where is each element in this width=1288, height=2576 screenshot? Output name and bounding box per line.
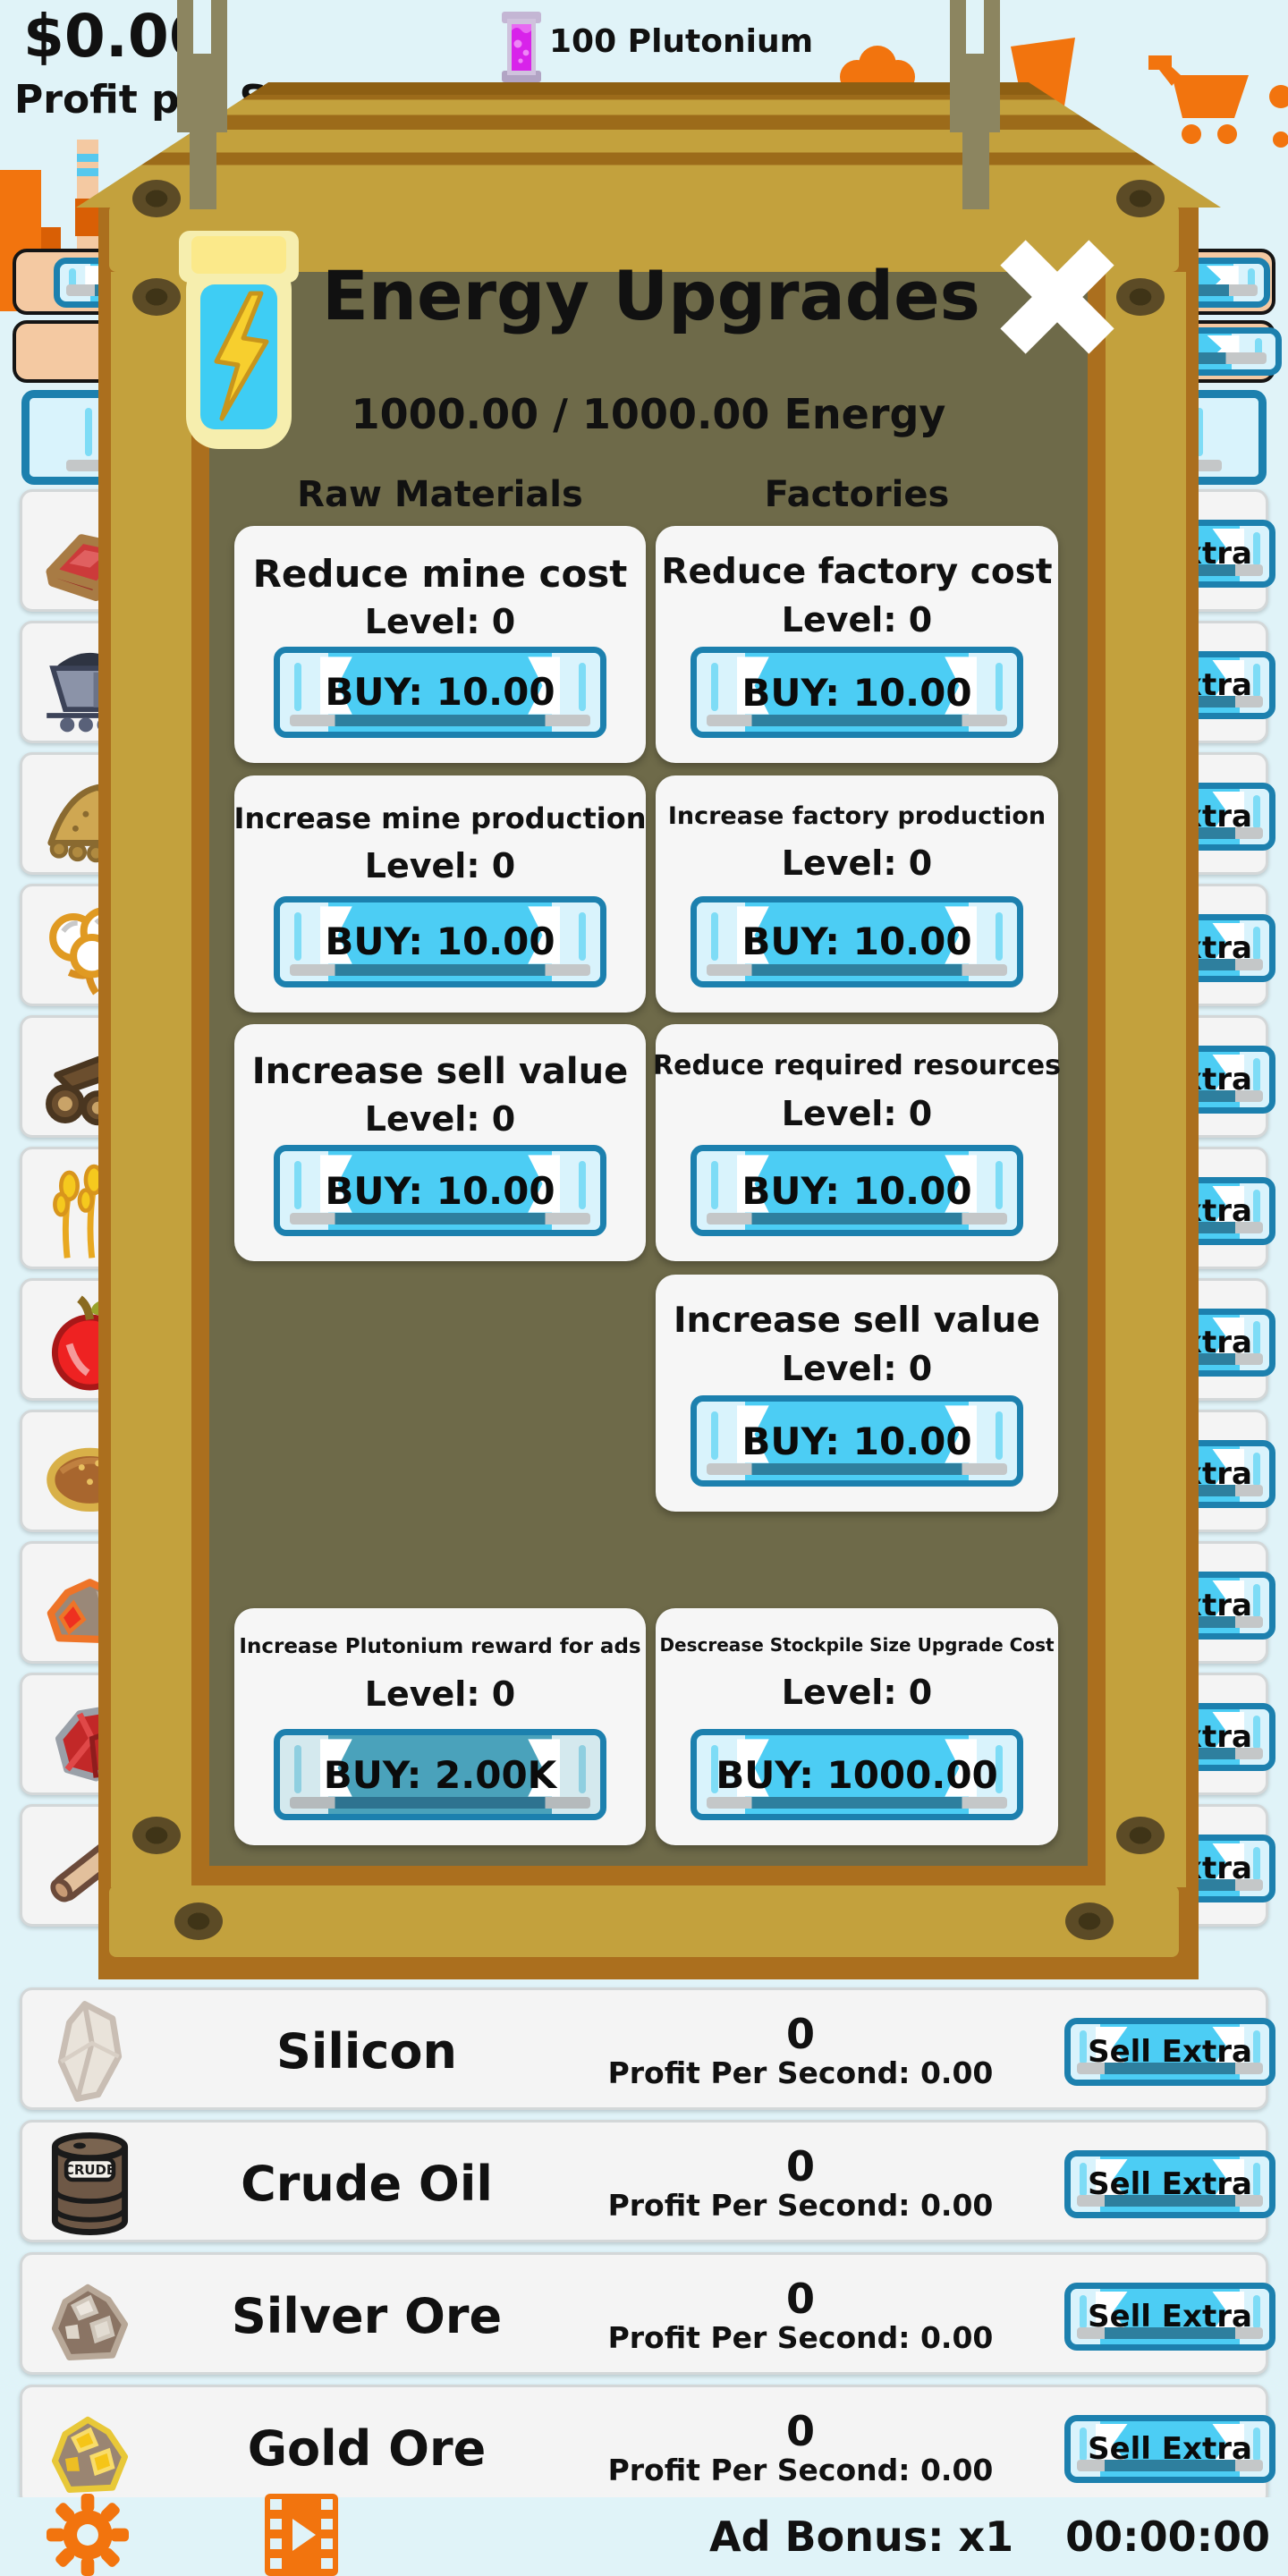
resource-stats: 0Profit Per Second: 0.00 [595, 2123, 1006, 2245]
upgrade-level: Level: 0 [365, 602, 515, 641]
banner-label: BUY: 10.00 [325, 670, 555, 714]
banner-bar [1253, 927, 1260, 961]
banner-bar [1253, 1321, 1260, 1355]
upgrade-level: Level: 0 [782, 1673, 932, 1712]
silver-ore-icon [38, 2265, 141, 2368]
banner-bar [85, 408, 92, 457]
banner-bar [579, 1745, 586, 1794]
upgrade-card: Increase sell valueLevel: 0BUY: 10.00 [234, 1024, 646, 1261]
banner-label: Sell Extra [1088, 2431, 1252, 2467]
upgrade-card: Descrease Stockpile Size Upgrade CostLev… [656, 1608, 1058, 1845]
banner-bar [1253, 2428, 1260, 2462]
resource-stats: 0Profit Per Second: 0.00 [595, 2387, 1006, 2510]
crate-bottom-rail [109, 1885, 1179, 1957]
banner-bar [996, 1411, 1003, 1461]
banner-label: BUY: 10.00 [325, 919, 555, 963]
plutonium-counter: 100 Plutonium [549, 23, 813, 60]
resource-row: Silver Ore0Profit Per Second: 0.00Sell E… [20, 2252, 1268, 2375]
crate-post [177, 0, 227, 132]
buy-button[interactable]: BUY: 10.00 [691, 896, 1023, 987]
banner-bar [1253, 2295, 1260, 2329]
crate-bolt [1116, 278, 1165, 316]
banner-strip [290, 1213, 591, 1224]
crate-post [950, 0, 1000, 132]
banner-label: BUY: 10.00 [741, 671, 971, 715]
upgrade-title: Increase mine production [234, 802, 647, 835]
crate-bolt [174, 1902, 223, 1940]
crate-bolt [132, 180, 181, 217]
footer-bar: Ad Bonus: x1 00:00:00 [0, 2497, 1288, 2576]
upgrade-card: Reduce mine costLevel: 0BUY: 10.00 [234, 526, 646, 763]
upgrade-level: Level: 0 [365, 1099, 515, 1139]
banner-bar [579, 1161, 586, 1210]
game-screen: $0.00 Profit per S 100 Plutonium [0, 0, 1288, 2576]
upgrade-title: Increase factory production [668, 802, 1046, 830]
buy-button[interactable]: BUY: 2.00K [274, 1729, 606, 1820]
crate-bolt [1116, 1817, 1165, 1854]
crate-post [190, 131, 216, 209]
banner-bar [996, 912, 1003, 962]
ad-video-icon[interactable] [263, 2492, 340, 2576]
banner-label: Sell Extra [1088, 2034, 1252, 2070]
banner-strip [290, 1797, 591, 1809]
upgrade-level: Level: 0 [782, 1094, 932, 1133]
banner-bar [1080, 2163, 1087, 2197]
banner-bar [1253, 1716, 1260, 1750]
banner-bar [1080, 2030, 1087, 2064]
buy-button[interactable]: BUY: 10.00 [691, 1145, 1023, 1236]
alert-icon [1268, 84, 1288, 159]
buy-button[interactable]: BUY: 10.00 [274, 647, 606, 738]
banner-bar [1253, 2163, 1260, 2197]
resource-profit: Profit Per Second: 0.00 [608, 2055, 994, 2090]
buy-button[interactable]: BUY: 10.00 [274, 1145, 606, 1236]
upgrade-title: Reduce mine cost [253, 553, 628, 596]
banner-bar [1253, 1584, 1260, 1618]
upgrade-card: Reduce required resourcesLevel: 0BUY: 10… [656, 1024, 1058, 1261]
resource-count: 0 [786, 2145, 815, 2188]
sell-extra-button[interactable]: Sell Extra [1064, 2415, 1275, 2483]
resource-profit: Profit Per Second: 0.00 [608, 2320, 994, 2355]
crate-post [962, 131, 989, 209]
banner-bar [711, 663, 718, 712]
close-icon[interactable] [1005, 247, 1109, 347]
banner-strip [707, 1213, 1008, 1224]
banner-label: Sell Extra [1088, 2299, 1252, 2334]
sell-extra-button[interactable]: Sell Extra [1064, 2018, 1275, 2086]
energy-jar-icon [159, 225, 318, 460]
banner-bar [579, 663, 586, 712]
crate-bolt [1065, 1902, 1114, 1940]
crate-right-column [1106, 272, 1186, 1887]
buy-button[interactable]: BUY: 10.00 [691, 647, 1023, 738]
banner-bar [1253, 1453, 1260, 1487]
upgrade-card: Reduce factory costLevel: 0BUY: 10.00 [656, 526, 1058, 763]
upgrade-level: Level: 0 [782, 843, 932, 883]
resource-name: Crude Oil [157, 2123, 577, 2245]
upgrade-title: Reduce factory cost [661, 553, 1052, 593]
buy-button[interactable]: BUY: 10.00 [274, 896, 606, 987]
banner-bar [294, 663, 301, 712]
upgrade-card: Increase Plutonium reward for adsLevel: … [234, 1608, 646, 1845]
upgrade-level: Level: 0 [782, 1349, 932, 1388]
svg-text:CRUDE: CRUDE [64, 2162, 115, 2178]
upgrade-card: Increase factory productionLevel: 0BUY: … [656, 775, 1058, 1013]
resource-name: Gold Ore [157, 2387, 577, 2510]
silicon-icon [38, 2000, 141, 2103]
banner-label: BUY: 1000.00 [716, 1753, 998, 1797]
banner-bar [1253, 1058, 1260, 1092]
banner-strip [707, 715, 1008, 726]
resource-row: Silicon0Profit Per Second: 0.00Sell Extr… [20, 1987, 1268, 2110]
banner-label: BUY: 10.00 [741, 1419, 971, 1463]
cart-icon[interactable] [1145, 48, 1252, 152]
banner-strip [707, 1797, 1008, 1809]
resource-count: 0 [786, 2012, 815, 2055]
ad-bonus-label: Ad Bonus: x1 [709, 2512, 1013, 2561]
banner-bar [1253, 532, 1260, 566]
upgrade-title: Reduce required resources [653, 1051, 1061, 1082]
banner-bar [1080, 2428, 1087, 2462]
upgrade-title: Increase sell value [674, 1301, 1040, 1342]
banner-bar [294, 1161, 301, 1210]
resource-stats: 0Profit Per Second: 0.00 [595, 1990, 1006, 2113]
banner-bar [1253, 664, 1260, 698]
column-header-factories: Factories [656, 474, 1058, 515]
resource-count: 0 [786, 2277, 815, 2320]
resource-name: Silver Ore [157, 2255, 577, 2377]
resource-row: Gold Ore0Profit Per Second: 0.00Sell Ext… [20, 2385, 1268, 2507]
upgrade-card: Increase mine productionLevel: 0BUY: 10.… [234, 775, 646, 1013]
ad-timer: 00:00:00 [1065, 2512, 1270, 2561]
banner-label: BUY: 10.00 [325, 1169, 555, 1213]
upgrade-level: Level: 0 [365, 846, 515, 885]
banner-bar [1253, 1847, 1260, 1881]
banner-label: Sell Extra [1088, 2166, 1252, 2202]
banner-strip [707, 964, 1008, 976]
banner-bar [1253, 795, 1260, 829]
banner-bar [294, 912, 301, 962]
upgrade-title: Descrease Stockpile Size Upgrade Cost [659, 1635, 1054, 1656]
upgrade-title: Increase sell value [252, 1051, 628, 1092]
banner-bar [711, 1161, 718, 1210]
banner-strip [290, 715, 591, 726]
banner-label: BUY: 2.00K [324, 1753, 556, 1797]
crate-bolt [132, 1817, 181, 1854]
sell-extra-button[interactable]: Sell Extra [1064, 2283, 1275, 2351]
resource-count: 0 [786, 2410, 815, 2453]
gear-icon[interactable] [47, 2494, 129, 2576]
crate-bolt [1116, 180, 1165, 217]
banner-bar [579, 912, 586, 962]
banner-bar [711, 912, 718, 962]
gold-ore-icon [38, 2397, 141, 2500]
buy-button[interactable]: BUY: 10.00 [691, 1395, 1023, 1487]
resource-profit: Profit Per Second: 0.00 [608, 2188, 994, 2223]
crude-oil-icon: CRUDE [38, 2132, 141, 2235]
upgrade-card: Increase sell valueLevel: 0BUY: 10.00 [656, 1275, 1058, 1512]
banner-bar [996, 663, 1003, 712]
crate-lid [76, 82, 1221, 208]
banner-bar [1253, 1190, 1260, 1224]
plutonium-vial-icon [501, 11, 542, 88]
banner-label: BUY: 10.00 [741, 1169, 971, 1213]
banner-bar [711, 1411, 718, 1461]
resource-stats: 0Profit Per Second: 0.00 [595, 2255, 1006, 2377]
energy-status: 1000.00 / 1000.00 Energy [209, 390, 1088, 438]
upgrade-title: Increase Plutonium reward for ads [239, 1635, 640, 1658]
modal-title: Energy Upgrades [322, 256, 975, 335]
upgrade-level: Level: 0 [365, 1674, 515, 1714]
banner-strip [707, 1463, 1008, 1475]
resource-profit: Profit Per Second: 0.00 [608, 2453, 994, 2487]
banner-bar [1080, 2295, 1087, 2329]
buy-button[interactable]: BUY: 1000.00 [691, 1729, 1023, 1820]
column-header-raw-materials: Raw Materials [234, 474, 646, 515]
resource-name: Silicon [157, 1990, 577, 2113]
crate-left-column [111, 272, 191, 1887]
banner-bar [294, 1745, 301, 1794]
upgrade-level: Level: 0 [782, 600, 932, 640]
banner-label: BUY: 10.00 [741, 919, 971, 963]
banner-bar [996, 1161, 1003, 1210]
banner-strip [290, 964, 591, 976]
sell-extra-button[interactable]: Sell Extra [1064, 2150, 1275, 2218]
banner-bar [1253, 2030, 1260, 2064]
resource-row: CRUDECrude Oil0Profit Per Second: 0.00Se… [20, 2120, 1268, 2242]
